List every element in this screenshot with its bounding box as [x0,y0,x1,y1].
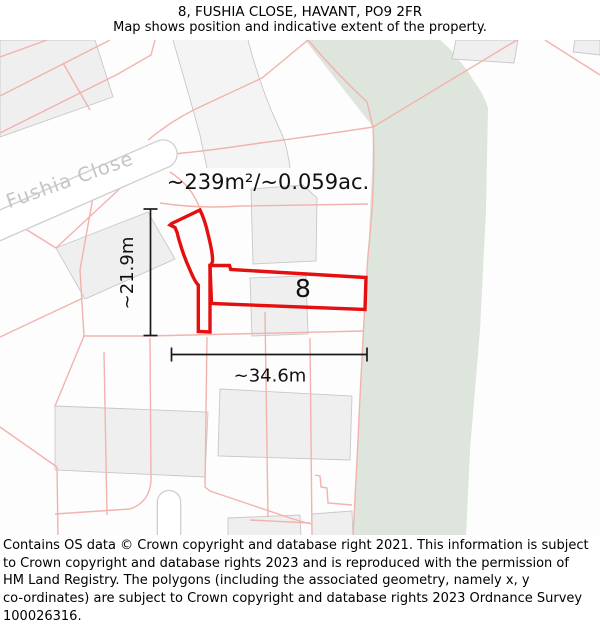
property-title: 8, FUSHIA CLOSE, HAVANT, PO9 2FR [0,0,600,20]
building [312,511,353,535]
building [55,406,208,477]
copyright-line-2: to Crown copyright and database rights 2… [3,555,597,573]
area-label: ~239m²/~0.059ac. [167,170,369,194]
dim-horizontal-label: ~34.6m [234,366,307,387]
plot-number-label: 8 [295,274,311,303]
building [251,185,317,264]
map-canvas: Fushia Close ~239m²/~0.059ac. 8 ~21.9m ~… [0,40,600,535]
page: 8, FUSHIA CLOSE, HAVANT, PO9 2FR Map sho… [0,0,600,625]
copyright-line-3: HM Land Registry. The polygons (includin… [3,572,597,590]
building [218,389,352,460]
copyright-line-4: co-ordinates) are subject to Crown copyr… [3,590,597,608]
map-header: 8, FUSHIA CLOSE, HAVANT, PO9 2FR Map sho… [0,0,600,40]
property-map: Fushia Close ~239m²/~0.059ac. 8 ~21.9m ~… [0,40,600,535]
dim-vertical-label: ~21.9m [117,237,138,310]
copyright-notice: Contains OS data © Crown copyright and d… [0,537,597,626]
map-description: Map shows position and indicative extent… [0,20,600,36]
building [573,40,600,55]
copyright-line-5: 100026316. [3,608,597,626]
copyright-line-1: Contains OS data © Crown copyright and d… [3,537,597,555]
